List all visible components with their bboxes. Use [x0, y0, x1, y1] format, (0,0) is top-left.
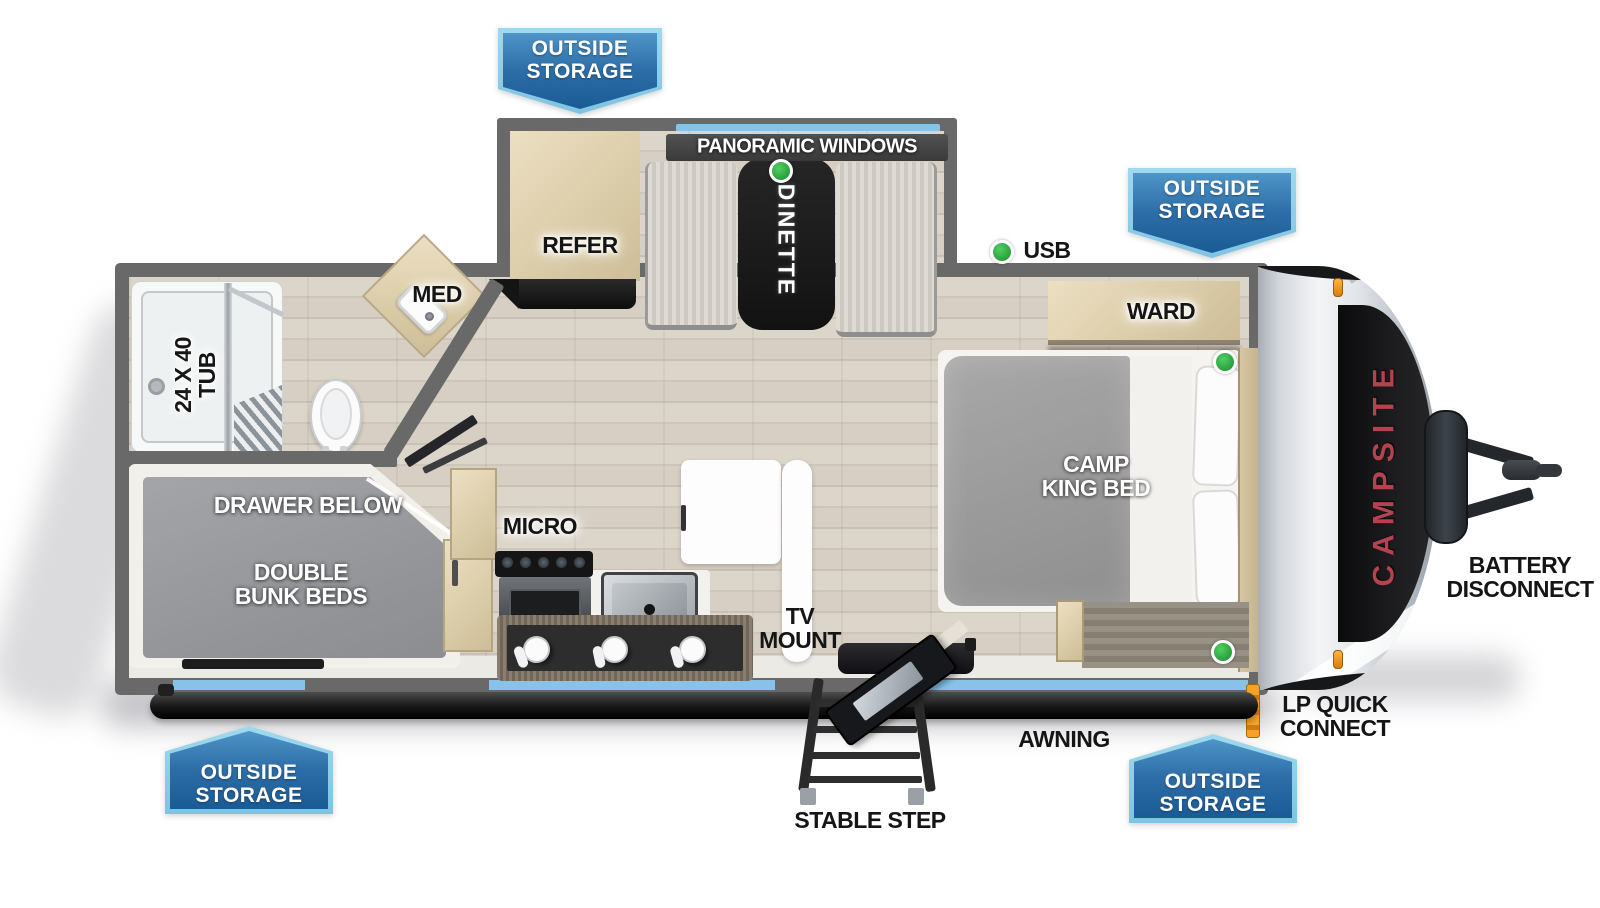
micro-cabinet: [450, 468, 497, 560]
burner-2: [520, 557, 531, 568]
badge-line1: OUTSIDE: [201, 761, 298, 784]
burner-5: [574, 557, 585, 568]
camp-king-bed-label: CAMP KING BED: [1042, 453, 1150, 501]
badge-line1: OUTSIDE: [1164, 177, 1261, 200]
hitch-handle: [1536, 464, 1562, 477]
refrigerator-cabinet: [510, 131, 640, 281]
med-faucet: [425, 312, 434, 321]
badge-text: OUTSIDE STORAGE: [498, 37, 662, 83]
window-strip-bunk: [173, 680, 305, 690]
badge-line2: STORAGE: [527, 60, 634, 83]
bed-led-bottom-icon: [1211, 640, 1235, 664]
tub-size-text: 24 X 40: [170, 337, 196, 413]
dinette-led-indicator-icon: [769, 159, 793, 183]
bunk-cabinet-handle: [452, 560, 458, 586]
badge-line2: STORAGE: [196, 784, 303, 807]
outside-storage-badge-bottom-left: OUTSIDE STORAGE: [165, 726, 333, 814]
bunk-drawer-strip: [182, 659, 324, 669]
burner-3: [538, 557, 549, 568]
med-label: MED: [412, 283, 462, 307]
floorplan-canvas: DINETTE PANORAMIC WINDOWS REFER 24 X 40 …: [0, 0, 1600, 908]
tv-text: TV: [786, 603, 814, 629]
dinette-bench-left: [645, 162, 737, 330]
badge-text: OUTSIDE STORAGE: [1128, 177, 1296, 223]
battery-text: BATTERY: [1469, 552, 1572, 578]
stable-step-label: STABLE STEP: [794, 809, 945, 833]
pillow-bottom: [1192, 489, 1242, 607]
burner-4: [556, 557, 567, 568]
bunk-beds-text: BUNK BEDS: [235, 583, 367, 609]
dinette-label: DINETTE: [773, 184, 800, 296]
double-text: DOUBLE: [254, 559, 348, 585]
outside-storage-badge-top-left: OUTSIDE STORAGE: [498, 28, 662, 114]
tv-wall: [681, 460, 781, 564]
stool-2: [601, 636, 628, 663]
cap-roof-trim: [1258, 266, 1438, 287]
toilet-seat: [320, 388, 352, 440]
marker-light-bottom-icon: [1333, 650, 1343, 669]
ward-label: WARD: [1127, 300, 1195, 324]
bed-led-top-icon: [1213, 350, 1237, 374]
step-rung-3: [810, 752, 920, 759]
disconnect-text: DISCONNECT: [1446, 576, 1593, 602]
shower-door-frame: [224, 283, 232, 451]
drawer-below-label: DRAWER BELOW: [214, 494, 402, 518]
double-bunk-label: DOUBLE BUNK BEDS: [235, 561, 367, 609]
tub-label: 24 X 40 TUB: [172, 337, 220, 413]
tv-wall-handle: [681, 505, 686, 531]
king-bed-text: KING BED: [1042, 475, 1150, 501]
battery-disconnect-box: [1424, 410, 1468, 544]
usb-label: USB: [1023, 239, 1070, 263]
outside-storage-badge-top-right: OUTSIDE STORAGE: [1128, 168, 1296, 258]
sink-drain: [644, 604, 655, 615]
badge-line2: STORAGE: [1160, 793, 1267, 816]
bed-nightstand: [1056, 600, 1084, 662]
badge-text: OUTSIDE STORAGE: [1129, 770, 1297, 816]
step-rung-4: [808, 776, 922, 783]
step-foot-right: [908, 788, 924, 805]
brand-label: CAMPSITE: [1368, 359, 1399, 586]
battery-disconnect-label: BATTERY DISCONNECT: [1446, 554, 1593, 602]
dinette-bench-right: [836, 162, 937, 337]
pillow-top: [1192, 365, 1242, 487]
awning-tube: [150, 692, 1258, 719]
badge-line2: STORAGE: [1159, 200, 1266, 223]
panoramic-windows-label: PANORAMIC WINDOWS: [697, 137, 917, 158]
awning-label: AWNING: [1018, 728, 1110, 752]
tub-text: TUB: [194, 352, 220, 398]
bathtub-drain: [148, 378, 165, 395]
tv-mount-label: TV MOUNT: [759, 605, 841, 653]
refer-label: REFER: [542, 234, 617, 258]
awning-bracket: [158, 684, 174, 696]
marker-light-top-icon: [1333, 278, 1343, 297]
step-foot-left: [800, 788, 816, 805]
lp-quick-text: LP QUICK: [1282, 691, 1387, 717]
usb-led-icon: [990, 240, 1014, 264]
mount-text: MOUNT: [759, 627, 841, 653]
badge-line1: OUTSIDE: [1165, 770, 1262, 793]
badge-text: OUTSIDE STORAGE: [165, 761, 333, 807]
outside-storage-badge-bottom-right: OUTSIDE STORAGE: [1129, 734, 1297, 823]
camp-text: CAMP: [1063, 451, 1129, 477]
entry-door-latch: [965, 638, 976, 651]
badge-line1: OUTSIDE: [532, 37, 629, 60]
micro-label: MICRO: [503, 515, 577, 539]
window-strip-kitchen: [489, 680, 775, 690]
burner-1: [502, 557, 513, 568]
refrigerator-front: [514, 279, 636, 309]
